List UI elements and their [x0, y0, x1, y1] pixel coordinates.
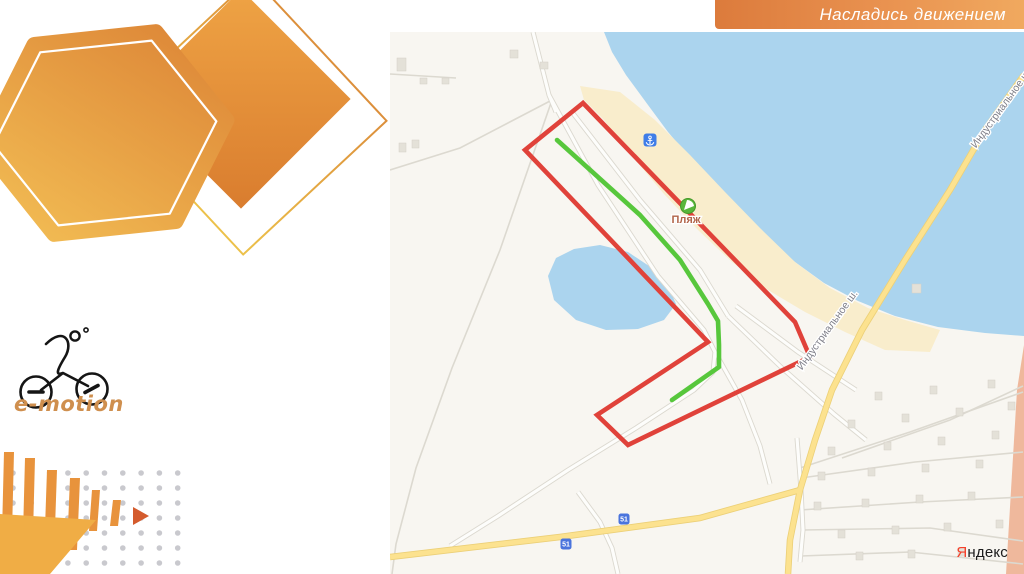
- grid-dot: [120, 470, 126, 476]
- grid-dot: [175, 560, 181, 566]
- grid-dot: [157, 545, 163, 551]
- building: [908, 550, 915, 558]
- grid-dot: [175, 485, 181, 491]
- grid-dot: [120, 560, 126, 566]
- grid-dot: [157, 515, 163, 521]
- brand-name: e-motion: [14, 392, 174, 416]
- building: [884, 442, 891, 450]
- promo-banner: Насладись движением: [715, 0, 1024, 29]
- yandex-logo-rest: ндекс: [967, 544, 1008, 561]
- building: [856, 552, 863, 560]
- grid-dot: [83, 500, 89, 506]
- map-label: Пляж: [671, 214, 700, 226]
- grid-dot: [157, 485, 163, 491]
- grid-dot: [157, 470, 163, 476]
- building: [912, 284, 921, 293]
- decor-top-left: [0, 0, 390, 300]
- grid-dot: [102, 470, 108, 476]
- building: [848, 420, 855, 428]
- route-shield-number: 51: [620, 517, 628, 524]
- grid-dot: [175, 470, 181, 476]
- grid-dot: [102, 500, 108, 506]
- building: [412, 140, 419, 148]
- building: [818, 472, 825, 480]
- building: [420, 78, 427, 84]
- building: [988, 380, 995, 388]
- yandex-logo-ya: Я: [956, 544, 967, 561]
- building: [956, 408, 963, 416]
- building: [838, 530, 845, 538]
- map-container[interactable]: 5151ПляжИндустриальное ш.Индустриальное …: [390, 32, 1024, 574]
- building: [922, 464, 929, 472]
- grid-dot: [102, 545, 108, 551]
- slide-canvas: e-motion Насладись движением 5151ПляжИнд…: [0, 0, 1024, 574]
- grid-dot: [157, 530, 163, 536]
- grid-dot: [65, 560, 71, 566]
- building: [976, 460, 983, 468]
- map-canvas[interactable]: 5151ПляжИндустриальное ш.Индустриальное …: [390, 32, 1024, 574]
- grid-dot: [138, 500, 144, 506]
- grid-dot: [65, 470, 71, 476]
- building: [510, 50, 518, 58]
- building: [902, 414, 909, 422]
- decor-bottom-left: [0, 440, 200, 574]
- grid-dot: [102, 515, 108, 521]
- grid-dot: [120, 530, 126, 536]
- grid-dot: [83, 470, 89, 476]
- building: [397, 58, 406, 71]
- grid-dot: [157, 560, 163, 566]
- building: [992, 431, 999, 439]
- grid-dot: [120, 545, 126, 551]
- grid-dot: [157, 500, 163, 506]
- grid-dot: [138, 530, 144, 536]
- building: [828, 447, 835, 455]
- arrow-tip: [133, 507, 149, 525]
- grid-dot: [102, 530, 108, 536]
- promo-banner-text: Насладись движением: [715, 0, 1024, 29]
- route-shield-number: 51: [562, 542, 570, 549]
- grid-dot: [120, 515, 126, 521]
- building: [814, 502, 821, 510]
- building: [938, 437, 945, 445]
- yandex-attribution[interactable]: Яндекс: [956, 544, 1008, 561]
- arrow-wedge: [0, 514, 96, 574]
- building: [916, 495, 923, 503]
- building: [442, 78, 449, 84]
- grid-dot: [175, 530, 181, 536]
- grid-dot: [83, 560, 89, 566]
- building: [399, 143, 406, 152]
- building: [540, 62, 548, 69]
- grid-dot: [138, 560, 144, 566]
- building: [875, 392, 882, 400]
- building: [930, 386, 937, 394]
- building: [892, 526, 899, 534]
- grid-dot: [120, 485, 126, 491]
- building: [968, 492, 975, 500]
- building: [996, 520, 1003, 528]
- building: [944, 523, 951, 531]
- grid-dot: [138, 470, 144, 476]
- building: [868, 468, 875, 476]
- grid-dot: [175, 545, 181, 551]
- grid-dot: [175, 500, 181, 506]
- grid-dot: [102, 560, 108, 566]
- grid-dot: [138, 485, 144, 491]
- grid-dot: [138, 545, 144, 551]
- grid-dot: [175, 515, 181, 521]
- building: [862, 499, 869, 507]
- grid-dot: [102, 485, 108, 491]
- building: [1008, 402, 1015, 410]
- grid-dot: [83, 545, 89, 551]
- grid-dot: [83, 485, 89, 491]
